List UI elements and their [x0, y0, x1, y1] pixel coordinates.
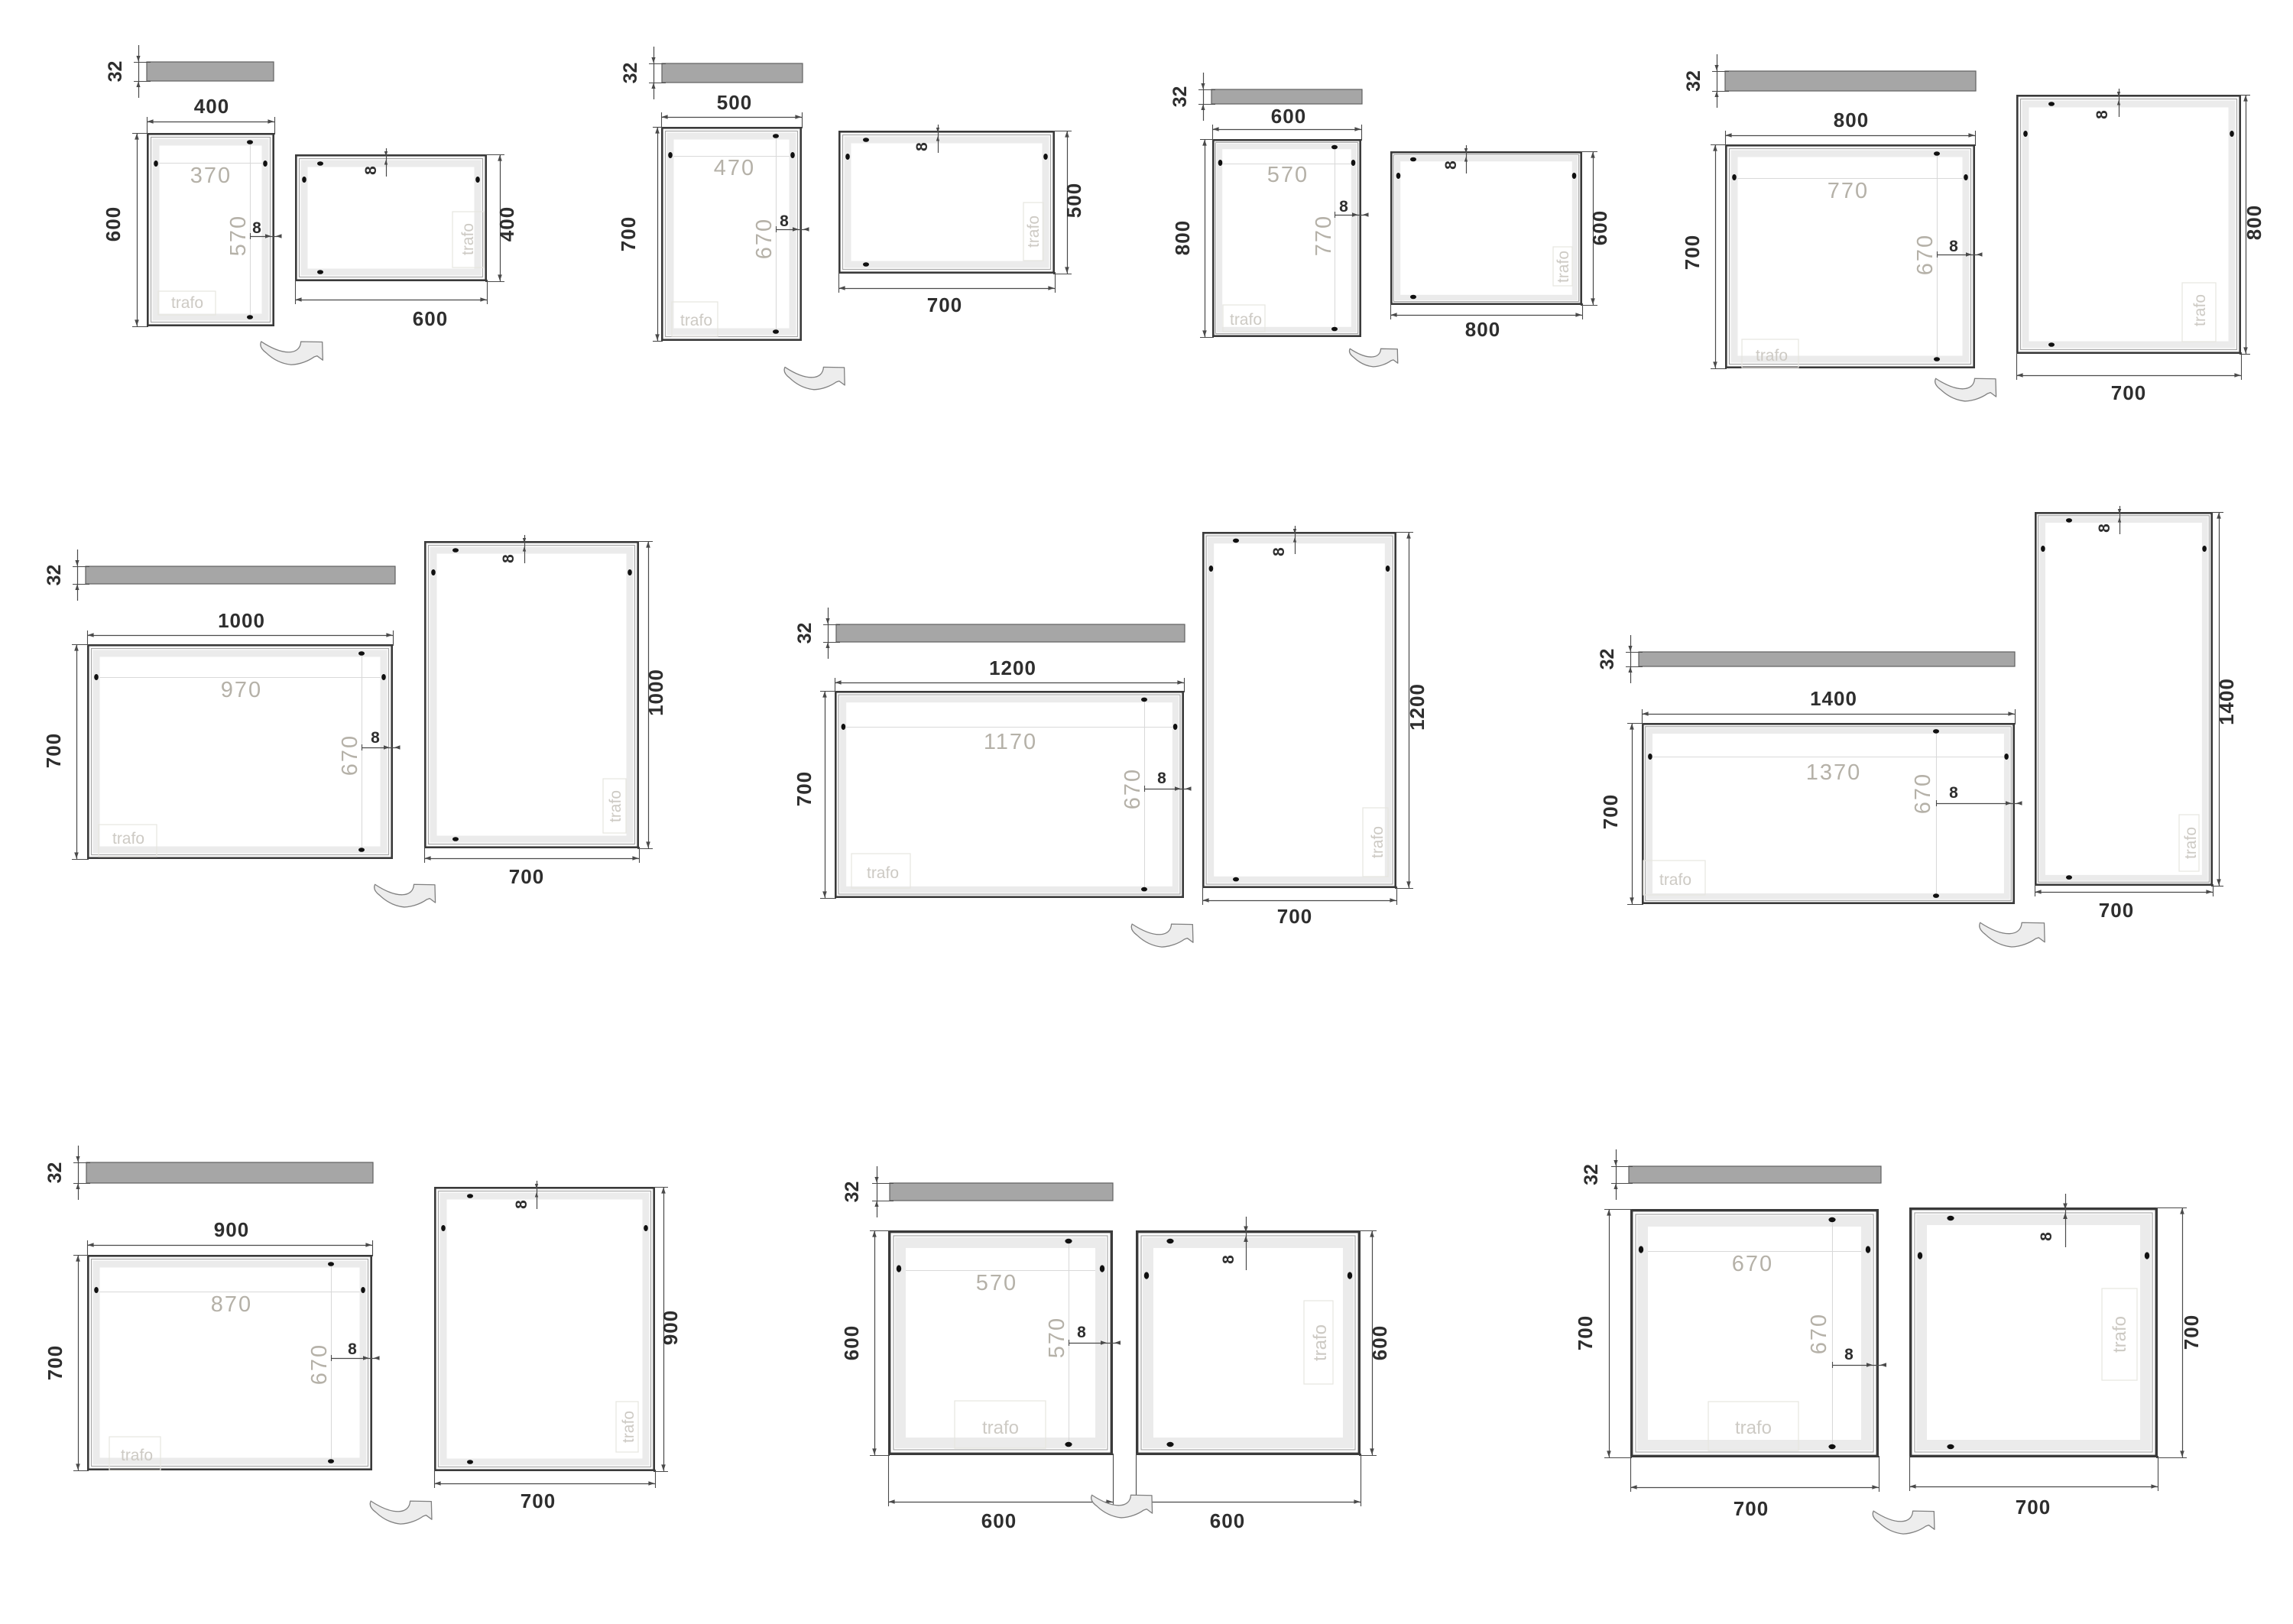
svg-text:trafo: trafo — [680, 312, 712, 329]
svg-text:400: 400 — [194, 95, 229, 118]
svg-text:670: 670 — [1732, 1252, 1773, 1276]
svg-text:trafo: trafo — [1025, 216, 1043, 248]
svg-text:8: 8 — [1220, 1255, 1237, 1264]
svg-text:trafo: trafo — [1310, 1324, 1331, 1361]
svg-text:700: 700 — [1574, 1315, 1597, 1350]
svg-text:8: 8 — [500, 554, 517, 563]
svg-text:trafo: trafo — [112, 830, 144, 848]
svg-text:8: 8 — [1442, 160, 1460, 170]
svg-text:1400: 1400 — [2215, 678, 2238, 725]
svg-text:8: 8 — [2096, 524, 2113, 533]
svg-text:8: 8 — [1339, 198, 1348, 216]
svg-text:770: 770 — [1312, 215, 1336, 256]
svg-text:32: 32 — [44, 1162, 66, 1184]
svg-text:1000: 1000 — [644, 669, 667, 716]
svg-text:700: 700 — [2016, 1496, 2051, 1519]
svg-text:570: 570 — [1045, 1317, 1069, 1358]
svg-text:600: 600 — [840, 1325, 863, 1360]
svg-text:8: 8 — [780, 212, 789, 230]
svg-text:trafo: trafo — [1659, 871, 1691, 889]
svg-text:32: 32 — [105, 61, 126, 83]
svg-text:500: 500 — [717, 91, 752, 114]
svg-text:500: 500 — [1062, 183, 1085, 218]
svg-text:470: 470 — [714, 156, 755, 180]
svg-text:1370: 1370 — [1806, 760, 1862, 785]
svg-text:670: 670 — [1911, 773, 1935, 814]
svg-text:970: 970 — [221, 678, 262, 702]
svg-text:600: 600 — [1588, 210, 1611, 245]
svg-text:670: 670 — [752, 218, 777, 259]
svg-text:trafo: trafo — [1555, 251, 1572, 283]
svg-text:700: 700 — [617, 216, 640, 251]
svg-text:900: 900 — [214, 1218, 249, 1241]
svg-text:770: 770 — [1828, 179, 1869, 203]
svg-text:32: 32 — [794, 623, 816, 644]
svg-text:8: 8 — [252, 219, 261, 237]
svg-text:600: 600 — [1210, 1509, 1245, 1532]
svg-text:670: 670 — [338, 734, 362, 776]
svg-text:trafo: trafo — [2191, 294, 2209, 326]
svg-text:570: 570 — [1267, 163, 1309, 187]
svg-text:trafo: trafo — [2182, 827, 2200, 859]
svg-text:800: 800 — [1465, 318, 1500, 341]
svg-text:trafo: trafo — [2110, 1316, 2130, 1353]
svg-text:8: 8 — [1077, 1324, 1086, 1341]
svg-text:700: 700 — [1734, 1497, 1769, 1520]
svg-text:700: 700 — [1681, 235, 1704, 270]
svg-text:1170: 1170 — [984, 730, 1037, 754]
svg-text:8: 8 — [348, 1340, 357, 1358]
svg-text:32: 32 — [620, 63, 641, 84]
svg-text:1400: 1400 — [1810, 687, 1857, 710]
svg-text:trafo: trafo — [982, 1418, 1019, 1438]
svg-text:600: 600 — [1271, 105, 1306, 128]
svg-text:370: 370 — [190, 164, 232, 188]
svg-text:700: 700 — [42, 733, 65, 768]
svg-text:700: 700 — [521, 1489, 556, 1512]
svg-text:8: 8 — [2038, 1232, 2055, 1241]
svg-text:700: 700 — [2111, 381, 2146, 404]
svg-text:32: 32 — [44, 565, 65, 586]
svg-text:trafo: trafo — [1369, 826, 1387, 858]
svg-text:32: 32 — [1581, 1164, 1602, 1185]
svg-text:8: 8 — [913, 142, 931, 151]
svg-text:32: 32 — [842, 1182, 863, 1203]
svg-text:700: 700 — [793, 771, 816, 806]
svg-text:trafo: trafo — [459, 223, 477, 255]
svg-text:trafo: trafo — [1756, 347, 1788, 365]
svg-text:670: 670 — [1913, 234, 1938, 275]
svg-text:8: 8 — [1949, 784, 1958, 802]
svg-text:8: 8 — [1270, 547, 1288, 556]
svg-text:8: 8 — [1949, 238, 1958, 255]
svg-text:8: 8 — [362, 166, 380, 175]
svg-text:800: 800 — [2243, 205, 2265, 240]
svg-text:32: 32 — [1169, 86, 1191, 108]
svg-text:trafo: trafo — [1230, 311, 1262, 329]
svg-text:8: 8 — [513, 1200, 530, 1209]
svg-text:8: 8 — [1844, 1346, 1854, 1363]
svg-text:670: 670 — [1121, 768, 1145, 809]
svg-text:8: 8 — [2094, 110, 2111, 119]
svg-text:8: 8 — [1157, 770, 1166, 787]
svg-text:8: 8 — [371, 729, 380, 747]
svg-text:900: 900 — [659, 1310, 682, 1345]
svg-text:400: 400 — [495, 206, 518, 241]
svg-text:700: 700 — [927, 293, 962, 316]
svg-text:700: 700 — [44, 1345, 66, 1380]
svg-text:700: 700 — [509, 865, 544, 888]
svg-text:600: 600 — [413, 307, 448, 330]
svg-text:32: 32 — [1597, 649, 1618, 670]
svg-text:570: 570 — [226, 215, 251, 256]
svg-text:570: 570 — [976, 1271, 1017, 1295]
svg-text:trafo: trafo — [1735, 1418, 1772, 1438]
svg-text:1000: 1000 — [218, 609, 265, 632]
svg-text:trafo: trafo — [171, 294, 203, 312]
svg-text:600: 600 — [981, 1509, 1017, 1532]
svg-text:700: 700 — [1277, 905, 1312, 928]
svg-text:trafo: trafo — [121, 1447, 153, 1464]
svg-text:800: 800 — [1834, 109, 1869, 131]
svg-text:600: 600 — [102, 206, 125, 241]
svg-text:670: 670 — [307, 1344, 332, 1385]
svg-text:700: 700 — [2099, 899, 2134, 922]
svg-text:1200: 1200 — [1406, 683, 1429, 731]
svg-text:800: 800 — [1171, 220, 1194, 255]
svg-text:trafo: trafo — [620, 1411, 637, 1443]
svg-text:trafo: trafo — [607, 790, 624, 822]
svg-text:670: 670 — [1807, 1313, 1831, 1354]
svg-text:600: 600 — [1368, 1325, 1391, 1360]
svg-text:trafo: trafo — [867, 864, 899, 882]
svg-text:700: 700 — [2180, 1314, 2203, 1350]
svg-text:870: 870 — [211, 1292, 252, 1317]
svg-text:1200: 1200 — [989, 656, 1036, 679]
svg-text:700: 700 — [1599, 794, 1622, 829]
svg-text:32: 32 — [1683, 70, 1704, 92]
